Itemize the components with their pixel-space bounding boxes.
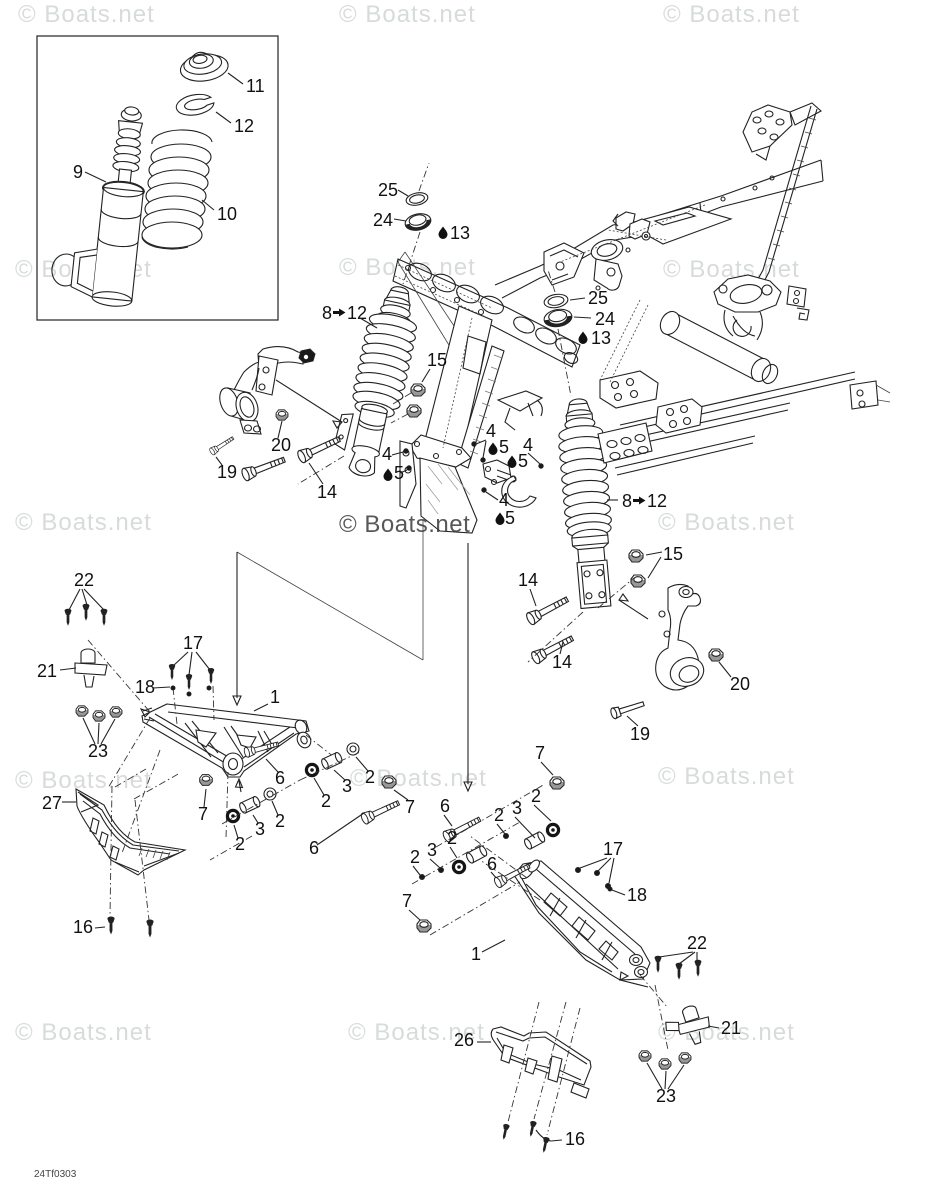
svg-text:© Boats.net: © Boats.net: [658, 509, 795, 536]
svg-text:5: 5: [394, 463, 404, 483]
svg-text:24Tf0303: 24Tf0303: [34, 1169, 77, 1180]
svg-text:23: 23: [656, 1086, 676, 1106]
svg-text:5: 5: [499, 437, 509, 457]
svg-text:19: 19: [630, 724, 650, 744]
svg-text:20: 20: [730, 674, 750, 694]
svg-text:12: 12: [234, 116, 254, 136]
svg-text:2: 2: [531, 786, 541, 806]
svg-text:22: 22: [74, 570, 94, 590]
svg-text:18: 18: [135, 677, 155, 697]
svg-text:4: 4: [499, 490, 509, 510]
svg-text:5: 5: [518, 451, 528, 471]
svg-text:13: 13: [450, 223, 470, 243]
svg-text:21: 21: [721, 1018, 741, 1038]
svg-text:20: 20: [271, 435, 291, 455]
svg-text:13: 13: [591, 328, 611, 348]
svg-text:© Boats.net: © Boats.net: [15, 1019, 152, 1046]
svg-text:27: 27: [42, 793, 62, 813]
svg-text:24: 24: [373, 210, 393, 230]
svg-text:6: 6: [440, 796, 450, 816]
svg-text:8: 8: [622, 491, 632, 511]
svg-text:© Boats.net: © Boats.net: [15, 767, 152, 794]
svg-text:24: 24: [595, 309, 615, 329]
svg-text:© Boats.net: © Boats.net: [18, 1, 155, 28]
svg-text:17: 17: [183, 633, 203, 653]
svg-text:4: 4: [486, 421, 496, 441]
svg-text:15: 15: [427, 350, 447, 370]
svg-text:3: 3: [255, 819, 265, 839]
svg-text:1: 1: [270, 687, 280, 707]
svg-text:8: 8: [322, 303, 332, 323]
svg-text:17: 17: [603, 839, 623, 859]
svg-text:6: 6: [309, 838, 319, 858]
svg-text:© Boats.net: © Boats.net: [663, 1, 800, 28]
svg-text:2: 2: [321, 791, 331, 811]
svg-text:14: 14: [518, 570, 538, 590]
svg-text:26: 26: [454, 1030, 474, 1050]
svg-text:2: 2: [410, 847, 420, 867]
svg-text:1: 1: [471, 944, 481, 964]
svg-text:18: 18: [627, 885, 647, 905]
svg-text:25: 25: [588, 288, 608, 308]
svg-text:4: 4: [382, 444, 392, 464]
svg-text:© Boats.net: © Boats.net: [658, 763, 795, 790]
svg-text:© Boats.net: © Boats.net: [339, 1, 476, 28]
svg-text:7: 7: [198, 804, 208, 824]
svg-text:2: 2: [275, 811, 285, 831]
svg-text:7: 7: [535, 743, 545, 763]
svg-text:9: 9: [73, 162, 83, 182]
svg-text:19: 19: [217, 462, 237, 482]
svg-text:12: 12: [647, 491, 667, 511]
svg-text:7: 7: [405, 797, 415, 817]
svg-text:15: 15: [663, 544, 683, 564]
svg-text:25: 25: [378, 180, 398, 200]
svg-text:3: 3: [427, 840, 437, 860]
svg-text:16: 16: [73, 917, 93, 937]
svg-text:© Boats.net: © Boats.net: [15, 509, 152, 536]
svg-text:21: 21: [37, 661, 57, 681]
svg-text:2: 2: [494, 805, 504, 825]
svg-text:3: 3: [512, 798, 522, 818]
svg-text:2: 2: [235, 834, 245, 854]
svg-text:6: 6: [487, 854, 497, 874]
svg-text:14: 14: [317, 482, 337, 502]
svg-text:22: 22: [687, 933, 707, 953]
svg-text:10: 10: [217, 204, 237, 224]
svg-text:5: 5: [505, 508, 515, 528]
svg-text:11: 11: [246, 76, 265, 96]
svg-text:© Boats.net: © Boats.net: [339, 511, 470, 538]
svg-text:14: 14: [552, 652, 572, 672]
svg-text:7: 7: [402, 891, 412, 911]
svg-text:16: 16: [565, 1129, 585, 1149]
